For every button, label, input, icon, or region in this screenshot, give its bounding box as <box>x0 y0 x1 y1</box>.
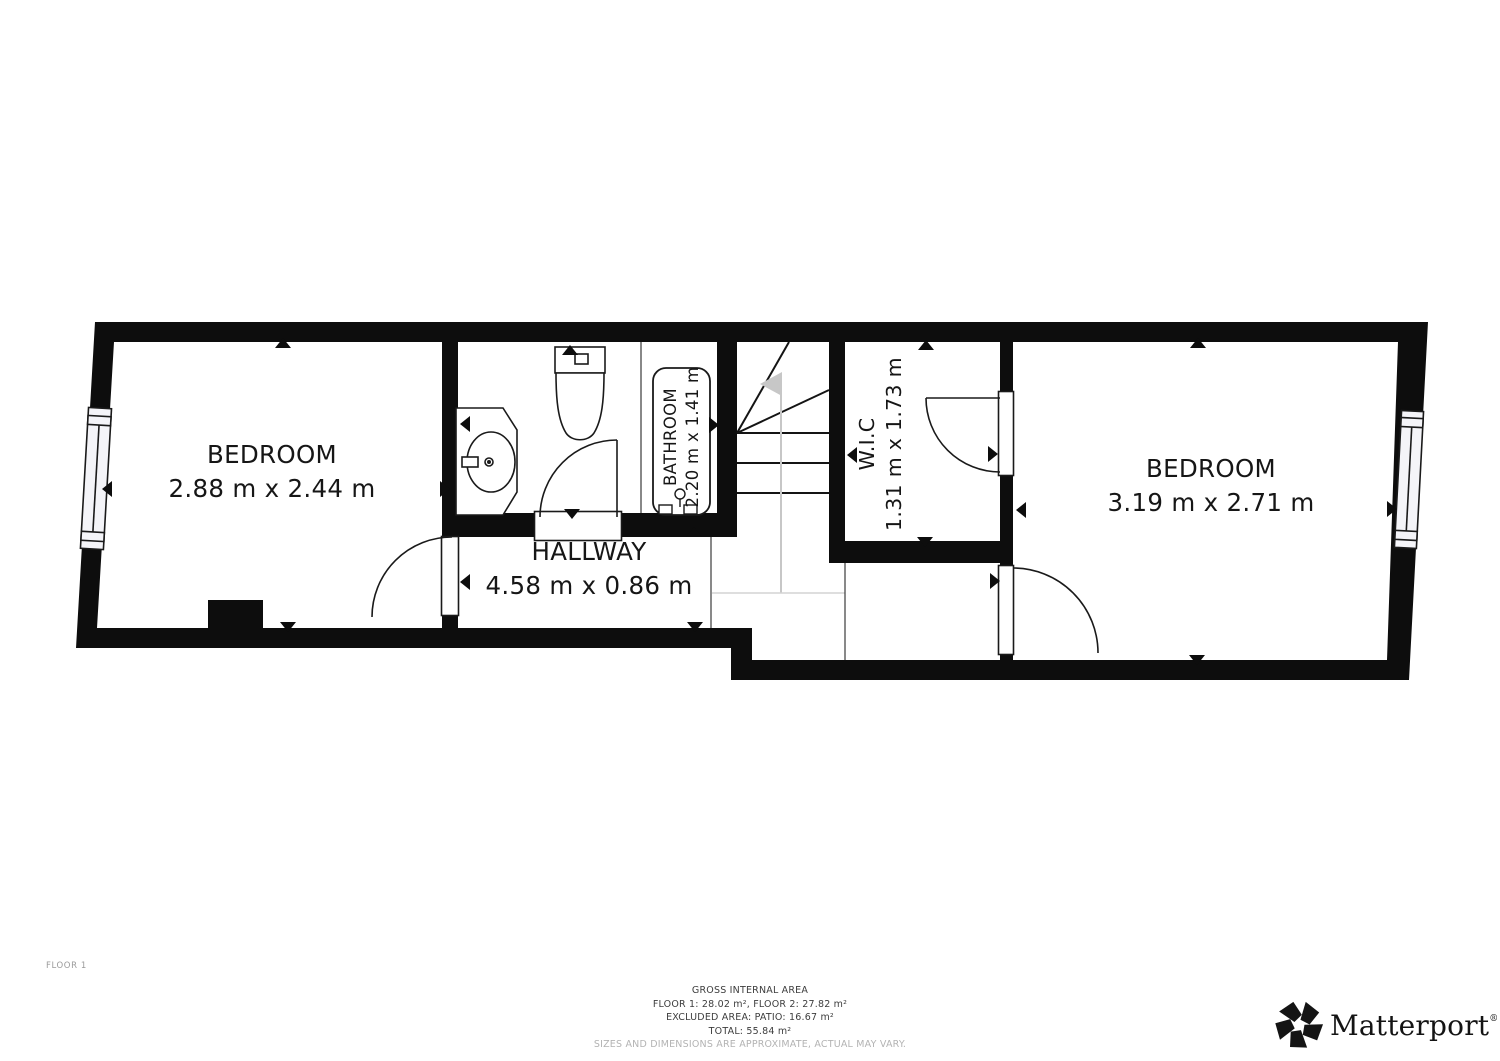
stair-direction-arrow-icon <box>760 372 782 396</box>
arrow-right-icon <box>988 446 998 462</box>
door-arc-bedroom-left <box>372 537 452 617</box>
registered-mark: ® <box>1489 1014 1498 1024</box>
gross-internal-area-title: GROSS INTERNAL AREA <box>0 984 1500 998</box>
floorplan-page: BEDROOM 2.88 m x 2.44 m BATHROOM 2.20 m … <box>0 0 1500 1061</box>
room-name: W.I.C <box>854 357 881 531</box>
matterport-logo-icon <box>1274 1000 1324 1050</box>
toilet-icon <box>555 347 605 440</box>
arrow-left-icon <box>1016 502 1026 518</box>
floor-tag: FLOOR 1 <box>46 961 87 971</box>
room-dims: 2.20 m x 1.41 m <box>682 367 704 508</box>
door-leaf-bedroom-left <box>442 537 459 616</box>
room-name: BEDROOM <box>169 438 376 472</box>
matterport-logo: Matterport® <box>1274 1000 1498 1050</box>
room-label-wic: W.I.C 1.31 m x 1.73 m <box>854 357 908 531</box>
stairs-icon <box>737 342 829 493</box>
chimney-breast <box>208 600 263 628</box>
room-name: BEDROOM <box>1108 452 1315 486</box>
arrow-left-icon <box>460 574 470 590</box>
room-name: BATHROOM <box>660 367 682 508</box>
door-arc-bedroom-right <box>1013 568 1098 653</box>
window-left <box>80 407 111 549</box>
door-leaf-bedroom-right <box>999 566 1014 655</box>
door-leaf-wic <box>999 392 1014 476</box>
matterport-wordmark: Matterport® <box>1330 1009 1498 1042</box>
room-label-hallway: HALLWAY 4.58 m x 0.86 m <box>486 535 693 603</box>
door-arc-bathroom <box>540 440 617 517</box>
room-label-bedroom-left: BEDROOM 2.88 m x 2.44 m <box>169 438 376 506</box>
room-dims: 1.31 m x 1.73 m <box>881 357 908 531</box>
room-label-bathroom: BATHROOM 2.20 m x 1.41 m <box>660 367 704 508</box>
room-label-bedroom-right: BEDROOM 3.19 m x 2.71 m <box>1108 452 1315 520</box>
floorplan-drawing <box>0 0 1500 1061</box>
room-dims: 3.19 m x 2.71 m <box>1108 486 1315 520</box>
room-dims: 2.88 m x 2.44 m <box>169 472 376 506</box>
room-dims: 4.58 m x 0.86 m <box>486 569 693 603</box>
room-name: HALLWAY <box>486 535 693 569</box>
